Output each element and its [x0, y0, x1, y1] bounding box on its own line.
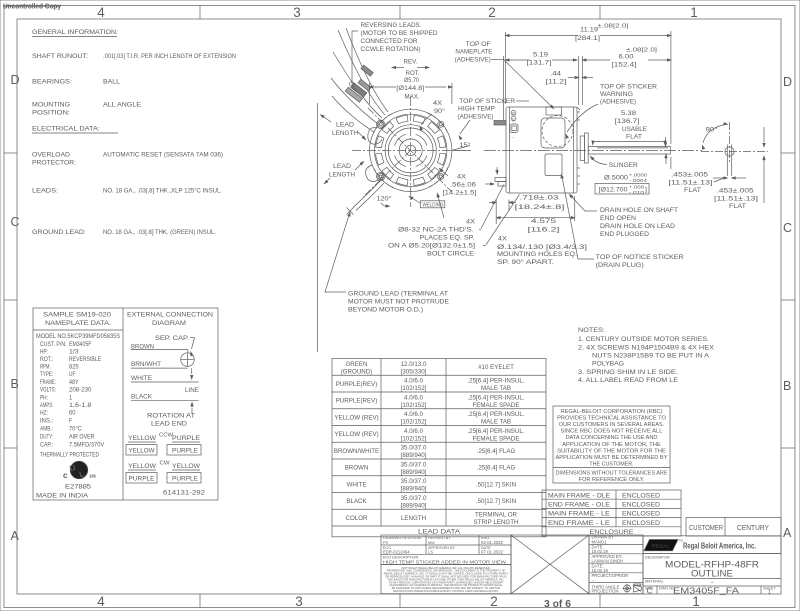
svg-text:07.01.2022: 07.01.2022: [481, 549, 504, 554]
svg-text:.25[6.4] PER-INSUL.: .25[6.4] PER-INSUL.: [467, 378, 524, 385]
svg-text:AIR OVER: AIR OVER: [69, 435, 95, 441]
svg-text:YELLOW (REV): YELLOW (REV): [334, 431, 378, 438]
svg-text:4.575: 4.575: [531, 218, 557, 225]
svg-text:3: 3: [293, 5, 301, 20]
svg-text:(GROUND): (GROUND): [341, 368, 373, 375]
svg-text:4.0/6.0: 4.0/6.0: [404, 411, 423, 418]
svg-text:[102/152]: [102/152]: [401, 435, 427, 442]
svg-text:END FRAME - LE: END FRAME - LE: [548, 520, 610, 527]
svg-text:02.01.2022: 02.01.2022: [481, 540, 504, 545]
svg-text:Ø.5000: Ø.5000: [604, 175, 629, 182]
svg-text:[305/330]: [305/330]: [401, 368, 427, 375]
svg-text:[152.4]: [152.4]: [612, 62, 637, 69]
svg-text:ROT.:: ROT.:: [40, 357, 54, 363]
svg-text:ENCLOSED: ENCLOSED: [622, 502, 661, 509]
svg-text:REV.: REV.: [404, 59, 418, 66]
svg-text:CUSTOMER: CUSTOMER: [689, 523, 723, 532]
svg-text:(ADHESIVE): (ADHESIVE): [458, 114, 494, 121]
svg-text:1: 1: [690, 5, 698, 20]
svg-text:ROTATION AT: ROTATION AT: [147, 413, 195, 420]
svg-text:PURPLE: PURPLE: [129, 476, 155, 483]
svg-text:GROUND LEAD:: GROUND LEAD:: [32, 229, 86, 236]
svg-text:LINE: LINE: [185, 387, 199, 394]
svg-text:70°C: 70°C: [69, 427, 82, 433]
svg-text:35.0/37.0: 35.0/37.0: [401, 495, 427, 502]
svg-text:NAMEPLATE: NAMEPLATE: [455, 49, 492, 56]
svg-text:BRN/WHT: BRN/WHT: [131, 361, 161, 368]
svg-text:BLACK: BLACK: [131, 394, 153, 401]
svg-text:REGAL-BELOIT CORPORATION (RBC): REGAL-BELOIT CORPORATION (RBC): [561, 409, 663, 415]
svg-text:MATERIAL: MATERIAL: [645, 580, 664, 584]
svg-text:Regal Beloit America, Inc.: Regal Beloit America, Inc.: [683, 541, 756, 550]
svg-text:6.00: 6.00: [619, 54, 635, 61]
svg-text:Uncontrolled Copy: Uncontrolled Copy: [3, 2, 62, 11]
svg-text:LENGTH: LENGTH: [332, 130, 358, 137]
svg-text:FEMALE SPADE: FEMALE SPADE: [473, 402, 520, 409]
svg-text:±.08[2.0]: ±.08[2.0]: [598, 24, 630, 30]
svg-text:POLYBAG: POLYBAG: [592, 361, 624, 368]
svg-text:B: B: [783, 379, 791, 393]
svg-text:REGAL: REGAL: [652, 543, 670, 548]
svg-text:1/3: 1/3: [69, 350, 79, 356]
svg-text:HIGH TEMP: HIGH TEMP: [458, 106, 495, 113]
svg-text:POSITION:: POSITION:: [32, 110, 70, 117]
svg-text:SUITABILITY OF THE MOTOR FOR T: SUITABILITY OF THE MOTOR FOR THE: [557, 448, 666, 454]
svg-text:PROJECTS/PRIOR: PROJECTS/PRIOR: [592, 573, 629, 578]
svg-text:4: 4: [97, 594, 105, 609]
svg-text:EDR-0212494: EDR-0212494: [383, 549, 410, 554]
svg-text:D: D: [11, 73, 20, 87]
svg-text:-.0004: -.0004: [629, 178, 647, 184]
svg-text:YELLOW: YELLOW: [129, 448, 155, 455]
svg-text:AMB.:: AMB.:: [40, 427, 54, 433]
svg-text:4: 4: [97, 5, 105, 20]
svg-text:E: E: [512, 116, 515, 121]
svg-text:4. ALL LABEL READ FROM LE: 4. ALL LABEL READ FROM LE: [578, 377, 678, 384]
svg-text:THERMALLY PROTECTED: THERMALLY PROTECTED: [40, 453, 99, 459]
svg-text:REVERSING LEADS.: REVERSING LEADS.: [361, 22, 422, 29]
svg-text:+.0000: +.0000: [629, 173, 647, 179]
svg-text:C: C: [647, 587, 653, 596]
svg-text:MADE IN INDIA: MADE IN INDIA: [36, 493, 89, 500]
svg-text:[11.51±.13]: [11.51±.13]: [714, 196, 758, 203]
svg-text:MAIN FRAME - OLE: MAIN FRAME - OLE: [548, 492, 610, 499]
svg-text:.25[6.4] PER-INSUL.: .25[6.4] PER-INSUL.: [467, 428, 524, 435]
svg-text:]: ]: [645, 187, 647, 194]
svg-text:1: 1: [692, 594, 700, 609]
svg-text:11.19: 11.19: [580, 27, 599, 34]
svg-text:RESTRICTIONS UNDER APPLICABLE: RESTRICTIONS UNDER APPLICABLE EXPORT CON…: [393, 589, 499, 593]
svg-text:F: F: [69, 419, 72, 425]
svg-text:NAMEPLATE DATA:: NAMEPLATE DATA:: [45, 320, 111, 327]
svg-text:C: C: [11, 215, 20, 229]
svg-text:PURPLE(REV): PURPLE(REV): [336, 398, 378, 405]
svg-text:CCWLE ROTATION): CCWLE ROTATION): [361, 46, 421, 53]
svg-text:DIMENSIONS WITHOUT TOLERANCES: DIMENSIONS WITHOUT TOLERANCES ARE: [556, 471, 668, 477]
svg-text:TOP OF NOTICE STICKER: TOP OF NOTICE STICKER: [596, 254, 685, 261]
svg-text:A: A: [783, 526, 792, 540]
svg-text:[889/940]: [889/940]: [401, 502, 427, 509]
svg-text:NO. 18 GA., .03[.8] THK.,XLP 1: NO. 18 GA., .03[.8] THK.,XLP 125°C INSUL…: [103, 188, 222, 195]
svg-text:RPM:: RPM:: [40, 365, 51, 371]
svg-text:4X: 4X: [466, 219, 475, 226]
svg-text:LENGTH: LENGTH: [401, 515, 426, 522]
svg-text:YELLOW: YELLOW: [172, 463, 200, 470]
svg-text:VOLTS:: VOLTS:: [40, 388, 56, 394]
svg-text:FLAT: FLAT: [729, 203, 746, 210]
svg-text:CONNECTED FOR: CONNECTED FOR: [361, 38, 419, 45]
svg-text:PROVIDES TECHNICAL ASSISTANCE: PROVIDES TECHNICAL ASSISTANCE TO: [557, 416, 666, 422]
svg-text:3. SPRING SHIM IN LE SIDE.: 3. SPRING SHIM IN LE SIDE.: [578, 369, 678, 376]
svg-text:Ø8-32 NC-2A THD'S.: Ø8-32 NC-2A THD'S.: [398, 227, 474, 234]
svg-text:[136.7]: [136.7]: [615, 118, 640, 125]
svg-text:-.010: -.010: [629, 190, 644, 196]
svg-text:REVERSIBLE: REVERSIBLE: [69, 357, 101, 363]
svg-text:90°: 90°: [434, 108, 446, 115]
svg-text:.001[.03] T.I.R. PER INCH LENG: .001[.03] T.I.R. PER INCH LENGTH OF EXTE…: [103, 53, 236, 60]
svg-text:D: D: [783, 75, 792, 89]
svg-text:SP. 90° APART.: SP. 90° APART.: [497, 259, 554, 266]
svg-text:REVISED BY: REVISED BY: [428, 536, 451, 540]
svg-text:DRAIN HOLE ON LEAD: DRAIN HOLE ON LEAD: [600, 223, 676, 230]
svg-text:WHITE: WHITE: [347, 481, 367, 488]
svg-text:[889/940]: [889/940]: [401, 469, 427, 476]
svg-text:.50[12.7] SKIN: .50[12.7] SKIN: [476, 498, 516, 505]
svg-text:LEADS:: LEADS:: [32, 188, 58, 195]
svg-text:STRIP LENGTH: STRIP LENGTH: [474, 519, 519, 526]
svg-text:5.19: 5.19: [533, 52, 549, 59]
svg-text:USABLE: USABLE: [622, 126, 647, 133]
svg-text:FRAME:: FRAME:: [40, 380, 56, 386]
svg-text:PURPLE(REV): PURPLE(REV): [336, 381, 378, 388]
svg-text:PURPLE: PURPLE: [172, 476, 198, 483]
svg-text:TOP OF: TOP OF: [466, 41, 491, 48]
svg-text:MOUNTING: MOUNTING: [32, 102, 70, 109]
svg-text:THE CUSTOMER.: THE CUSTOMER.: [589, 461, 634, 467]
svg-text:INS.:: INS.:: [40, 419, 54, 425]
svg-text:[889/940]: [889/940]: [401, 452, 427, 459]
svg-text:4X: 4X: [498, 236, 507, 243]
svg-text:MALE TAB: MALE TAB: [481, 385, 511, 392]
svg-text:-- --: -- --: [509, 136, 514, 140]
svg-text:35.0/37.0: 35.0/37.0: [401, 478, 427, 485]
svg-text:[18.24±.8]: [18.24±.8]: [515, 204, 565, 211]
svg-text:SHAFT RUNOUT:: SHAFT RUNOUT:: [32, 53, 88, 60]
svg-text:Ø5.70: Ø5.70: [404, 77, 419, 84]
svg-text:ENCLOSED: ENCLOSED: [622, 520, 661, 527]
svg-text:C: C: [783, 221, 792, 235]
svg-text:614131-292: 614131-292: [163, 490, 206, 497]
svg-text:SINCE RBC DOES NOT RECEIVE ALL: SINCE RBC DOES NOT RECEIVE ALL: [561, 429, 663, 435]
svg-text:END FRAME - OLE: END FRAME - OLE: [548, 502, 610, 509]
svg-text:.453±.005: .453±.005: [717, 188, 755, 195]
svg-text:120°: 120°: [377, 196, 393, 203]
svg-text:LS: LS: [428, 549, 433, 554]
svg-text:DRAWING REVISION/: DRAWING REVISION/: [383, 536, 422, 540]
svg-text:MOUNTING HOLES EQ.: MOUNTING HOLES EQ.: [497, 251, 577, 258]
svg-text:4.0/6.0: 4.0/6.0: [404, 428, 423, 435]
svg-text:PROJECTION: PROJECTION: [592, 589, 619, 594]
svg-text:SAMPLE SM19-020: SAMPLE SM19-020: [43, 312, 112, 319]
svg-text:PROTECTOR:: PROTECTOR:: [32, 160, 76, 167]
svg-text:#10 EYELET: #10 EYELET: [478, 364, 514, 371]
svg-text:5.38: 5.38: [621, 110, 637, 117]
svg-text:YELLOW: YELLOW: [128, 463, 156, 470]
svg-text:(ADHESIVE): (ADHESIVE): [455, 57, 491, 64]
svg-text:c: c: [63, 471, 68, 480]
svg-text:MOTOR MUST NOT PROTRUDE: MOTOR MUST NOT PROTRUDE: [348, 299, 449, 306]
svg-text:ALL ANGLE: ALL ANGLE: [103, 102, 141, 109]
svg-text:DATA CONCERNING THE USE AND: DATA CONCERNING THE USE AND: [566, 435, 658, 441]
svg-text:DRAIN HOLE ON SHAFT: DRAIN HOLE ON SHAFT: [600, 207, 678, 214]
svg-text:3: 3: [295, 594, 303, 609]
svg-text:GROUND LEAD (TERMINAL AT: GROUND LEAD (TERMINAL AT: [348, 291, 448, 298]
svg-text:MALE TAB: MALE TAB: [481, 419, 511, 426]
svg-text:HP:: HP:: [40, 350, 48, 356]
svg-text:.25[6.4] FLAG: .25[6.4] FLAG: [477, 448, 516, 455]
svg-text:DUTY:: DUTY:: [40, 435, 53, 441]
svg-text:B: B: [512, 111, 515, 116]
svg-text:HIGH TEMP STICKER ADDED IN MOT: HIGH TEMP STICKER ADDED IN MOTOR VIEW: [383, 560, 507, 565]
svg-text:CENTURY: CENTURY: [737, 523, 769, 532]
svg-text:35.0/37.0: 35.0/37.0: [401, 445, 427, 452]
svg-text:.56±.06: .56±.06: [450, 182, 477, 189]
svg-text:.25[6.4] PER-INSUL.: .25[6.4] PER-INSUL.: [467, 394, 524, 401]
svg-text:LENGTH: LENGTH: [329, 172, 355, 179]
svg-text:FLAT: FLAT: [626, 134, 642, 141]
svg-text:HZ:: HZ:: [40, 411, 48, 417]
svg-text:FEMALE SPADE: FEMALE SPADE: [473, 435, 520, 442]
svg-text:1: 1: [768, 589, 771, 595]
svg-text:YELLOW: YELLOW: [128, 435, 156, 442]
svg-text:35.0/37.0: 35.0/37.0: [401, 461, 427, 468]
svg-text:YELLOW (REV): YELLOW (REV): [334, 414, 378, 421]
svg-text:Ø.134/.130 [Ø3.4/3.3]: Ø.134/.130 [Ø3.4/3.3]: [497, 244, 587, 251]
svg-text:(MOTOR TO BE SHIPPED: (MOTOR TO BE SHIPPED: [361, 30, 439, 37]
svg-text:MODEL NO.5KCP39MFD05835S: MODEL NO.5KCP39MFD05835S: [36, 334, 120, 340]
svg-text:4.0/6.0: 4.0/6.0: [404, 378, 423, 385]
svg-text:EM3405F: EM3405F: [69, 342, 92, 348]
svg-text:NUTS N238P15B9 TO BE PUT IN A: NUTS N238P15B9 TO BE PUT IN A: [592, 353, 710, 360]
svg-text:LEAD DATA: LEAD DATA: [418, 529, 461, 536]
svg-text:GREEN: GREEN: [345, 361, 367, 368]
svg-text:.25[6.4] FLAG: .25[6.4] FLAG: [477, 465, 516, 472]
svg-text:WHITE: WHITE: [131, 375, 152, 382]
svg-text:PURPLE: PURPLE: [172, 435, 200, 442]
svg-text:1. CENTURY OUTSIDE MOTOR SERIE: 1. CENTURY OUTSIDE MOTOR SERIES.: [578, 336, 709, 343]
svg-text:BROWN/WHITE: BROWN/WHITE: [334, 448, 379, 455]
svg-text:[889/940]: [889/940]: [401, 486, 427, 493]
svg-text:4X: 4X: [457, 174, 466, 181]
svg-text:BALL: BALL: [103, 79, 121, 86]
svg-text:END OPEN: END OPEN: [600, 215, 636, 222]
svg-text:BLACK: BLACK: [346, 498, 367, 505]
svg-text:2: 2: [488, 5, 496, 20]
svg-text:60: 60: [69, 411, 76, 417]
svg-text:CW: CW: [160, 461, 171, 467]
svg-text:(DRAIN PLUG): (DRAIN PLUG): [596, 262, 644, 269]
svg-text:APPLICATION OF THE MOTOR, THE: APPLICATION OF THE MOTOR, THE: [562, 442, 661, 448]
svg-text:.453±.005: .453±.005: [671, 172, 709, 179]
svg-text:EM3405F_FA: EM3405F_FA: [673, 586, 739, 596]
svg-text:MAX.: MAX.: [405, 94, 420, 101]
svg-text:ON A Ø5.20[Ø132.0±1.5]: ON A Ø5.20[Ø132.0±1.5]: [388, 243, 475, 250]
svg-text:2. 4X SCREWS N194P1504B9 & 4X: 2. 4X SCREWS N194P1504B9 & 4X HEX: [578, 345, 714, 352]
svg-text:[Ø12.700: [Ø12.700: [599, 187, 629, 194]
svg-text:PLACES EQ. SP.: PLACES EQ. SP.: [420, 235, 475, 242]
svg-text:.25[6.4] PER-INSUL.: .25[6.4] PER-INSUL.: [467, 411, 524, 418]
svg-text:1.6-1.8: 1.6-1.8: [69, 403, 92, 409]
svg-text:[131.7]: [131.7]: [527, 60, 552, 67]
svg-text:MW: MW: [428, 541, 435, 545]
svg-text:MAIN FRAME - LE: MAIN FRAME - LE: [548, 511, 610, 518]
svg-text:[102/152]: [102/152]: [401, 402, 427, 409]
svg-text:SLINGER: SLINGER: [609, 162, 639, 169]
svg-text:ENCLOSED: ENCLOSED: [622, 511, 661, 518]
svg-text:FLAT: FLAT: [684, 187, 701, 194]
svg-text:END PLUGGED: END PLUGGED: [600, 231, 650, 238]
svg-text:ENCLOSED: ENCLOSED: [622, 492, 661, 499]
svg-text:LEAD: LEAD: [336, 122, 355, 129]
svg-text:[102/152]: [102/152]: [401, 419, 427, 426]
svg-text:4.0/6.0: 4.0/6.0: [404, 394, 423, 401]
svg-text:EXTERNAL CONNECTION: EXTERNAL CONNECTION: [127, 312, 213, 319]
svg-text:SEP. CAP.: SEP. CAP.: [155, 335, 189, 342]
svg-text:.44: .44: [550, 71, 562, 78]
svg-text:OUR CUSTOMERS IN SEVERAL AREAS: OUR CUSTOMERS IN SEVERAL AREAS.: [559, 422, 665, 428]
svg-text:NO. 18 GA., .03[.8] THK. (GREE: NO. 18 GA., .03[.8] THK. (GREEN) INSUL.: [103, 229, 216, 236]
svg-text:PH:: PH:: [40, 396, 48, 402]
svg-text:LEAD: LEAD: [333, 163, 352, 170]
svg-text:48Y: 48Y: [69, 380, 79, 386]
svg-text:.50[12.7] SKIN: .50[12.7] SKIN: [476, 481, 516, 488]
svg-text:AMPS:: AMPS:: [40, 403, 53, 409]
svg-text:2: 2: [490, 594, 498, 609]
svg-text:[102/152]: [102/152]: [401, 385, 427, 392]
svg-text:AUTOMATIC RESET (SENSATA 7AM 0: AUTOMATIC RESET (SENSATA 7AM 036): [103, 152, 223, 159]
svg-text:TYPE:: TYPE:: [40, 372, 53, 378]
svg-text:WARNING: WARNING: [600, 91, 633, 98]
svg-text:[11.51±.13]: [11.51±.13]: [669, 180, 713, 187]
svg-text:[Ø144.8]: [Ø144.8]: [396, 85, 424, 92]
svg-text:[284.1]: [284.1]: [575, 35, 600, 42]
svg-text:DIAGRAM: DIAGRAM: [152, 320, 186, 327]
svg-text:(ADHESIVE): (ADHESIVE): [600, 99, 636, 106]
svg-text:PS: PS: [383, 541, 389, 545]
svg-text:BROWN: BROWN: [345, 465, 369, 472]
svg-text:CUST. P/N:: CUST. P/N:: [40, 342, 67, 348]
svg-text:UF: UF: [69, 372, 76, 378]
svg-text:BOLT CIRCLE: BOLT CIRCLE: [427, 251, 474, 258]
svg-text:ROT.: ROT.: [406, 70, 420, 77]
svg-text:4X: 4X: [433, 100, 442, 107]
svg-text:LEAD END: LEAD END: [151, 421, 188, 428]
svg-text:COLOR: COLOR: [345, 515, 368, 522]
svg-text:[116.2]: [116.2]: [528, 227, 560, 234]
svg-text:B: B: [11, 377, 19, 391]
svg-text:FOR REFERENCE ONLY.: FOR REFERENCE ONLY.: [579, 477, 645, 483]
svg-text:ELECTRICAL DATA:: ELECTRICAL DATA:: [32, 126, 100, 133]
svg-text:NOTES:: NOTES:: [578, 327, 605, 334]
svg-text:.718±.03: .718±.03: [520, 195, 560, 202]
svg-text:TOP OF STICKER: TOP OF STICKER: [600, 84, 658, 91]
svg-text:TOP OF STICKER: TOP OF STICKER: [459, 98, 516, 105]
svg-text:A: A: [11, 529, 20, 543]
svg-text:OVERLOAD: OVERLOAD: [32, 152, 71, 159]
svg-text:E27885: E27885: [65, 484, 92, 491]
svg-text:OUTLINE: OUTLINE: [691, 569, 733, 580]
svg-text:APPLICATION MUST BE DETERMINED: APPLICATION MUST BE DETERMINED BY: [556, 455, 668, 461]
svg-text:PURPLE: PURPLE: [172, 448, 198, 455]
svg-text:825: 825: [69, 365, 79, 371]
svg-text:[11.2]: [11.2]: [546, 79, 567, 86]
svg-text:+.000: +.000: [629, 185, 644, 191]
svg-text:7.5MFD/370V: 7.5MFD/370V: [69, 443, 104, 449]
svg-text:208-230: 208-230: [69, 388, 92, 394]
svg-text:GENERAL INFORMATION:: GENERAL INFORMATION:: [32, 29, 118, 36]
svg-text:TERMINAL OR: TERMINAL OR: [475, 512, 518, 519]
svg-text:[14.2±1.5]: [14.2±1.5]: [443, 190, 477, 197]
svg-text:BEARINGS:: BEARINGS:: [32, 79, 72, 86]
svg-text:BEYOND MOTOR O.D.): BEYOND MOTOR O.D.): [348, 307, 423, 314]
svg-text:12.0/13.0: 12.0/13.0: [401, 361, 427, 368]
svg-text:us: us: [90, 474, 96, 480]
svg-text:3 of 6: 3 of 6: [544, 598, 571, 610]
svg-text:CAP.:: CAP.:: [40, 443, 54, 449]
